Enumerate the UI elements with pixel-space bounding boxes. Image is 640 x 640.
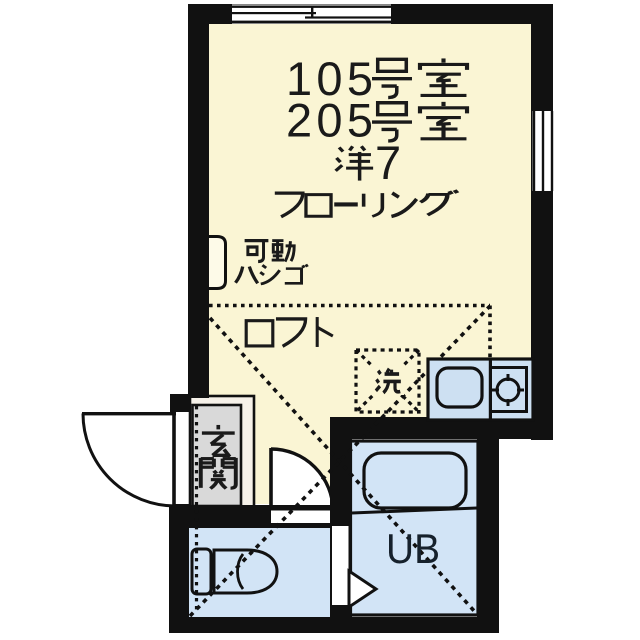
svg-text:205: 205 [286, 94, 373, 147]
svg-text:7: 7 [375, 136, 401, 189]
svg-text:UB: UB [386, 525, 440, 572]
